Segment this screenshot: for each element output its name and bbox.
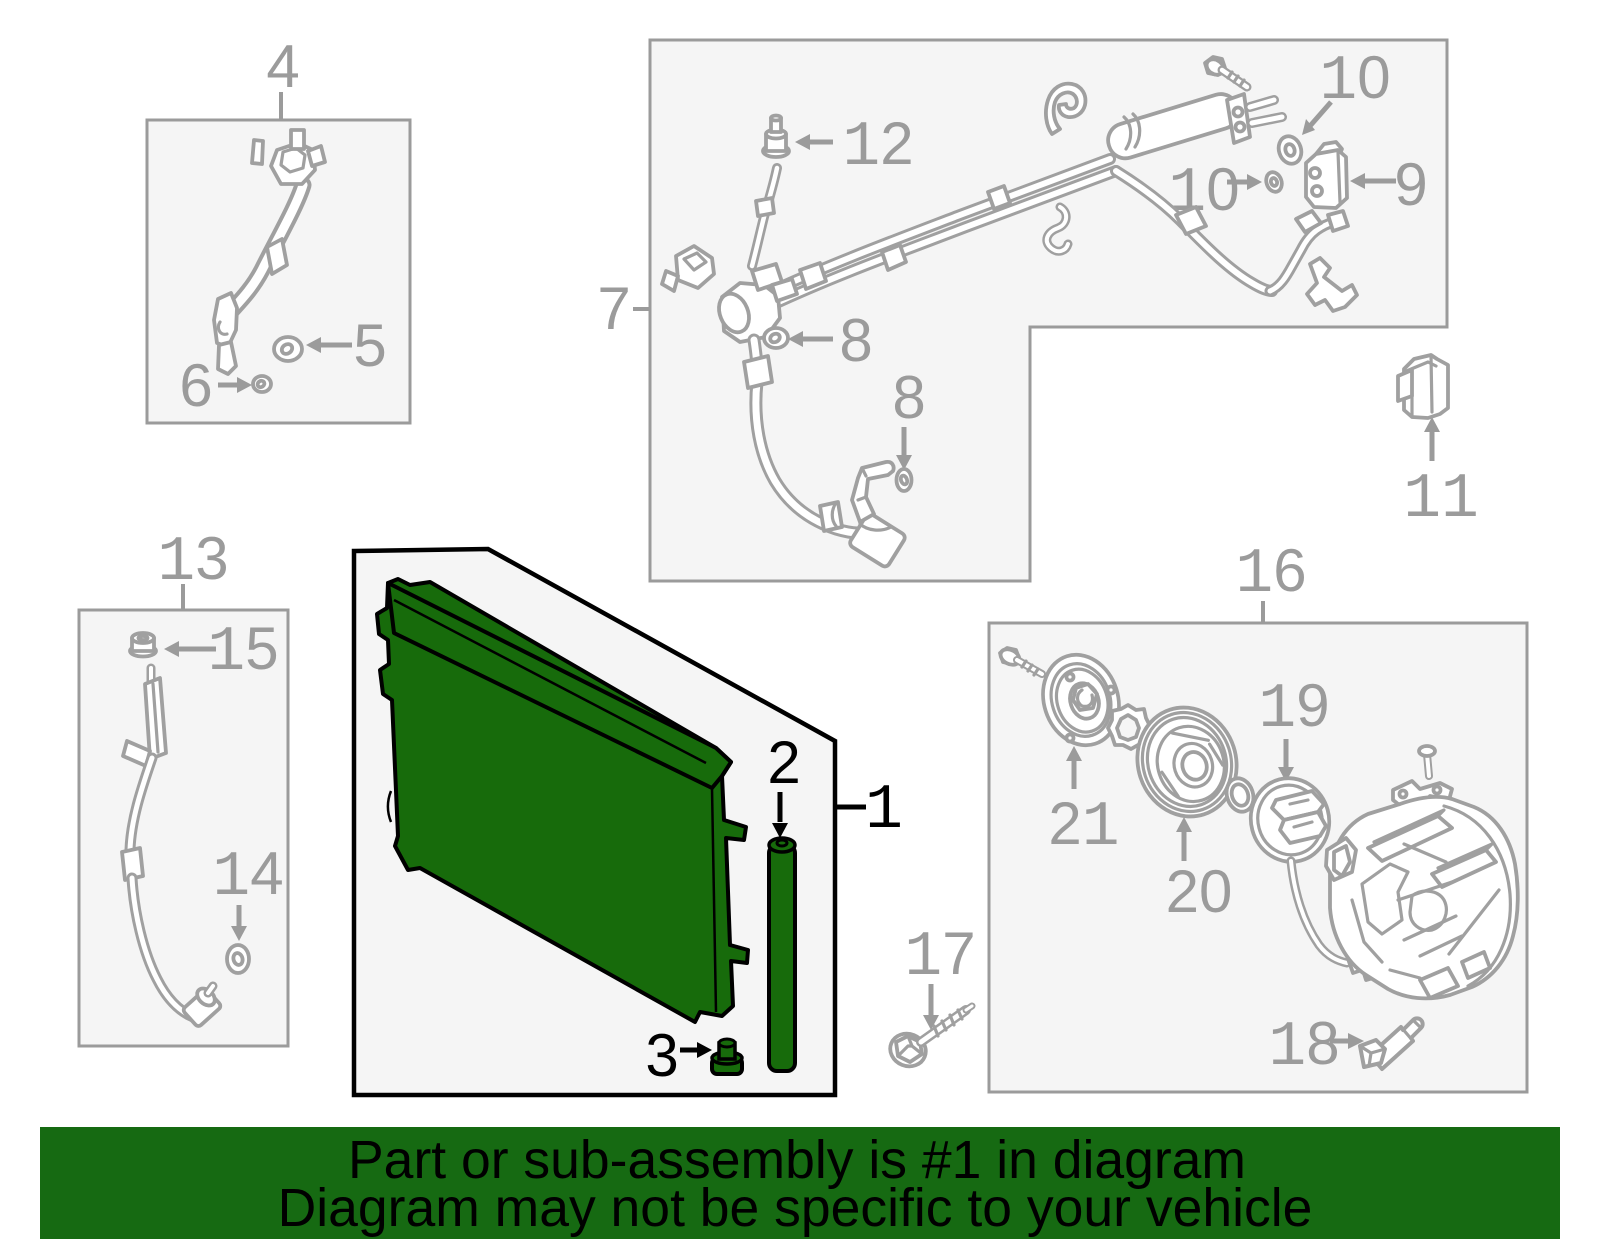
svg-text:5: 5	[353, 312, 386, 379]
svg-text:7: 7	[597, 275, 630, 342]
svg-text:12: 12	[842, 110, 913, 183]
svg-text:9: 9	[1394, 151, 1427, 218]
svg-text:3: 3	[645, 1022, 678, 1089]
svg-text:16: 16	[1235, 537, 1306, 610]
svg-text:18: 18	[1268, 1010, 1339, 1083]
svg-text:19: 19	[1258, 672, 1329, 745]
svg-text:8: 8	[839, 307, 872, 374]
svg-text:8: 8	[892, 364, 925, 431]
svg-text:11: 11	[1403, 464, 1479, 535]
svg-text:1: 1	[865, 775, 903, 846]
svg-text:17: 17	[904, 920, 975, 993]
svg-text:Diagram may not be specific to: Diagram may not be specific to your vehi…	[278, 1179, 1313, 1238]
svg-text:4: 4	[266, 33, 299, 100]
svg-text:21: 21	[1048, 790, 1119, 863]
svg-text:6: 6	[179, 352, 212, 419]
svg-text:15: 15	[207, 615, 278, 688]
svg-text:20: 20	[1166, 858, 1233, 925]
svg-text:2: 2	[767, 729, 800, 796]
svg-text:13: 13	[157, 525, 228, 598]
svg-text:14: 14	[212, 840, 283, 913]
